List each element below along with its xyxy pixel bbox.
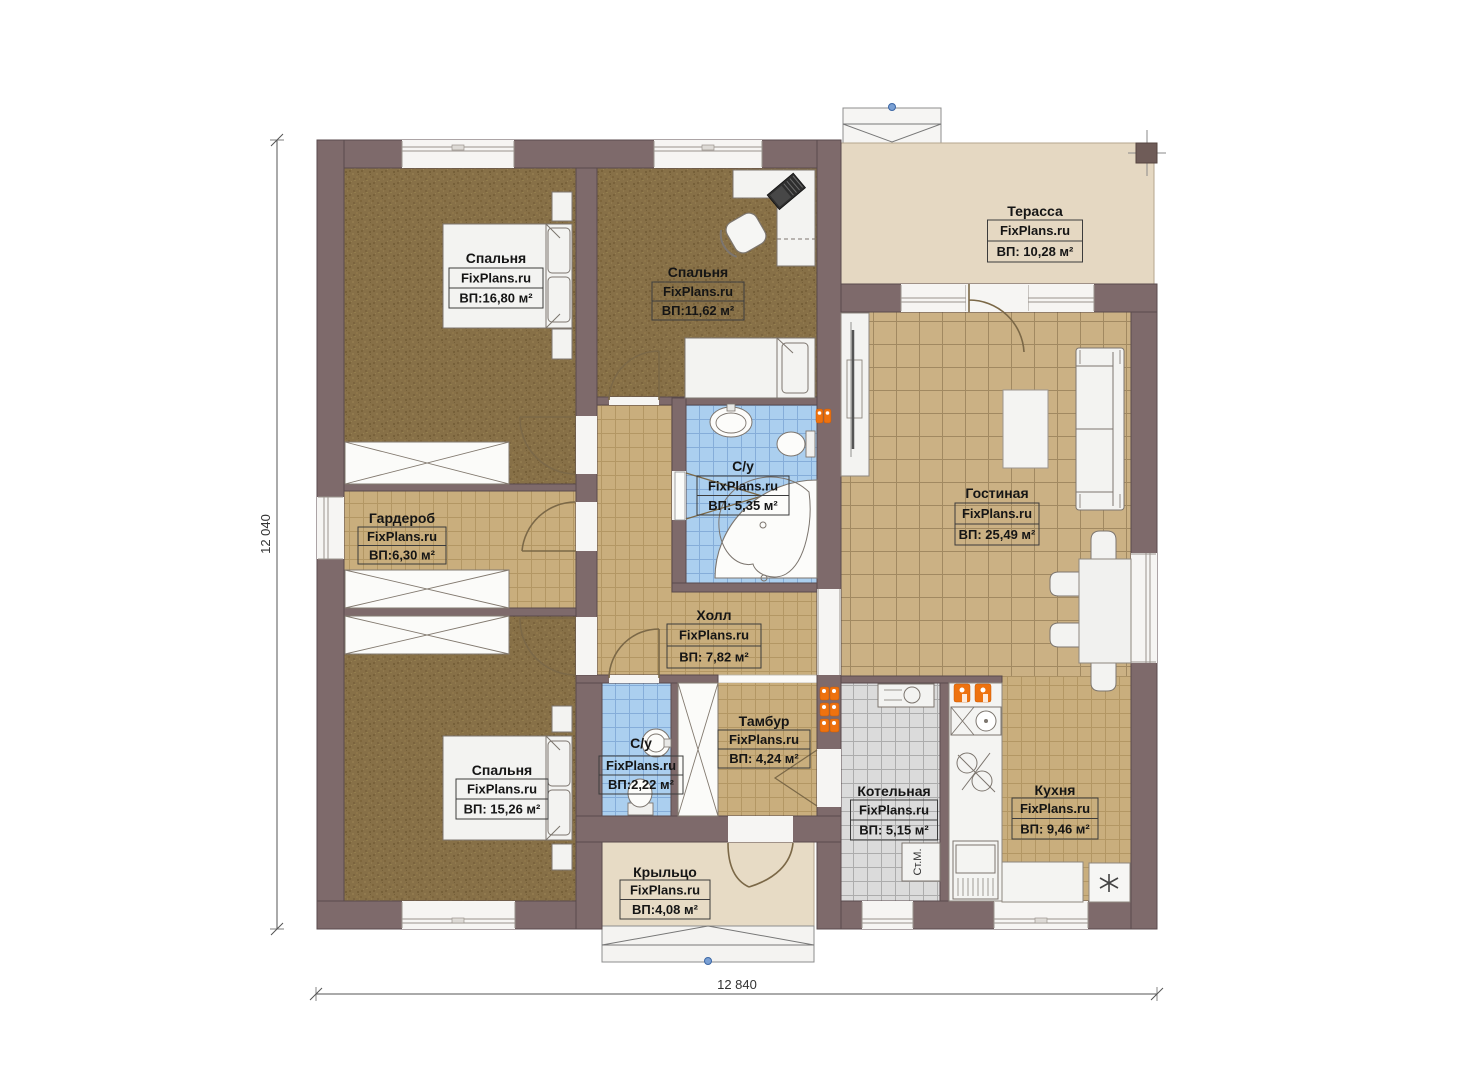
svg-text:FixPlans.ru: FixPlans.ru [461, 271, 531, 286]
svg-text:FixPlans.ru: FixPlans.ru [729, 732, 799, 747]
svg-text:FixPlans.ru: FixPlans.ru [367, 529, 437, 544]
svg-text:Кухня: Кухня [1035, 782, 1076, 798]
svg-text:FixPlans.ru: FixPlans.ru [962, 506, 1032, 521]
svg-text:ВП:6,30 м²: ВП:6,30 м² [369, 547, 436, 562]
svg-text:Гостиная: Гостиная [965, 485, 1028, 501]
svg-text:FixPlans.ru: FixPlans.ru [859, 803, 929, 818]
svg-text:ВП:2,22 м²: ВП:2,22 м² [608, 777, 675, 792]
svg-text:Спальня: Спальня [466, 250, 526, 266]
svg-text:12 840: 12 840 [717, 977, 757, 992]
svg-text:Терасса: Терасса [1007, 203, 1063, 219]
svg-text:FixPlans.ru: FixPlans.ru [1020, 801, 1090, 816]
svg-text:Спальня: Спальня [668, 264, 728, 280]
svg-text:ВП: 7,82 м²: ВП: 7,82 м² [679, 650, 749, 665]
svg-text:Гардероб: Гардероб [369, 510, 436, 526]
svg-text:12 040: 12 040 [258, 514, 273, 554]
svg-text:ВП: 10,28 м²: ВП: 10,28 м² [997, 244, 1074, 259]
svg-text:Тамбур: Тамбур [739, 713, 790, 729]
svg-text:FixPlans.ru: FixPlans.ru [708, 478, 778, 493]
svg-text:Крыльцо: Крыльцо [633, 864, 697, 880]
svg-text:ВП: 9,46 м²: ВП: 9,46 м² [1020, 821, 1090, 836]
svg-text:ВП: 5,35 м²: ВП: 5,35 м² [708, 498, 778, 513]
svg-text:Холл: Холл [696, 607, 731, 623]
svg-text:FixPlans.ru: FixPlans.ru [630, 882, 700, 897]
svg-text:Котельная: Котельная [857, 783, 930, 799]
svg-text:Спальня: Спальня [472, 762, 532, 778]
svg-text:FixPlans.ru: FixPlans.ru [1000, 223, 1070, 238]
svg-text:С/у: С/у [732, 458, 754, 474]
svg-text:С/у: С/у [630, 735, 652, 751]
svg-text:ВП:11,62 м²: ВП:11,62 м² [662, 303, 735, 318]
svg-text:ВП: 5,15 м²: ВП: 5,15 м² [859, 823, 929, 838]
svg-text:ВП:4,08 м²: ВП:4,08 м² [632, 902, 699, 917]
svg-text:ВП: 25,49 м²: ВП: 25,49 м² [959, 527, 1036, 542]
svg-text:ВП: 15,26 м²: ВП: 15,26 м² [464, 802, 541, 817]
svg-text:Ст.М.: Ст.М. [912, 848, 924, 875]
svg-text:ВП:16,80 м²: ВП:16,80 м² [459, 291, 533, 306]
svg-text:ВП: 4,24 м²: ВП: 4,24 м² [729, 751, 799, 766]
svg-text:FixPlans.ru: FixPlans.ru [467, 782, 537, 797]
svg-text:FixPlans.ru: FixPlans.ru [663, 284, 733, 299]
svg-text:FixPlans.ru: FixPlans.ru [606, 758, 676, 773]
svg-text:FixPlans.ru: FixPlans.ru [679, 628, 749, 643]
